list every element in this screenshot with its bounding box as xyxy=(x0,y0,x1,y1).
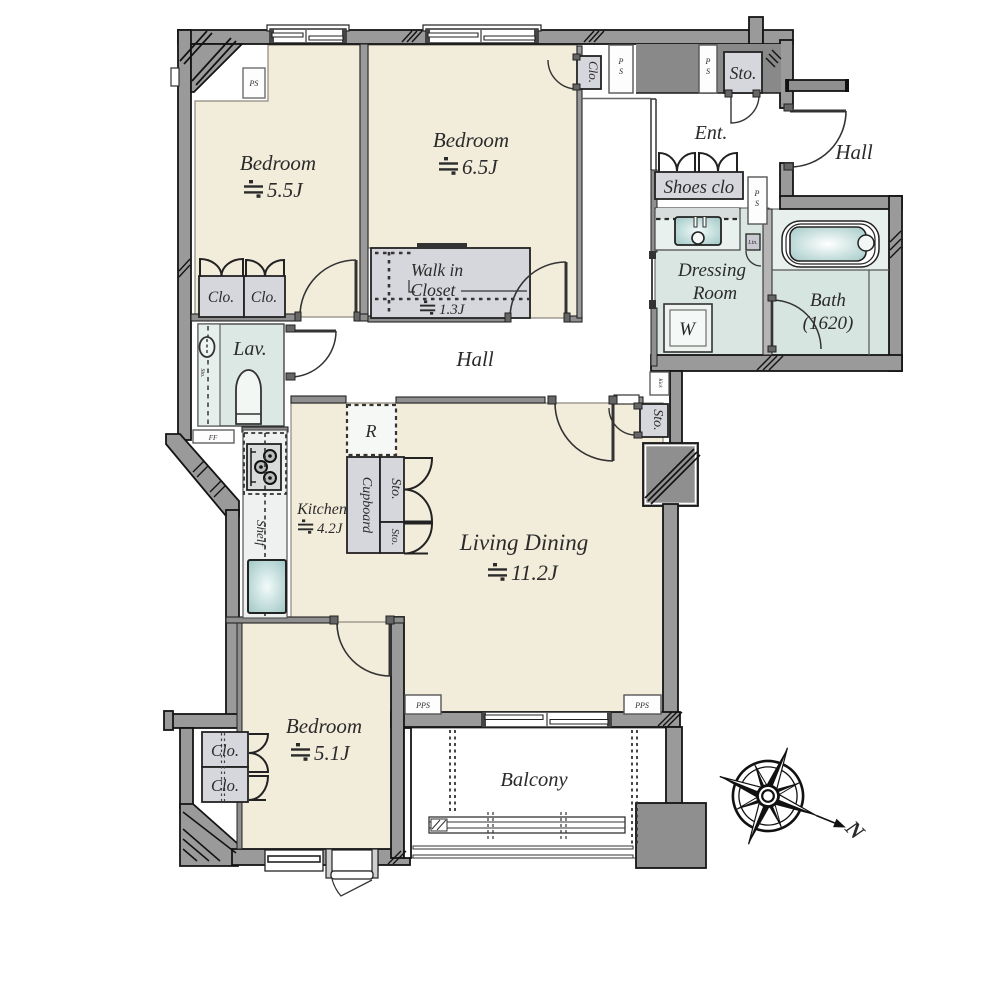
svg-text:Living Dining: Living Dining xyxy=(459,530,588,555)
svg-text:(1620): (1620) xyxy=(803,313,854,334)
svg-text:Bath: Bath xyxy=(810,290,846,311)
svg-text:Hall: Hall xyxy=(834,140,873,164)
svg-text:P: P xyxy=(754,189,760,198)
svg-text:W: W xyxy=(679,319,697,340)
svg-text:Sto.: Sto. xyxy=(650,409,665,430)
svg-text:Bedroom: Bedroom xyxy=(286,714,362,738)
svg-text:Sto.: Sto. xyxy=(199,368,205,377)
svg-text:Bedroom: Bedroom xyxy=(433,128,509,152)
svg-text:Walk in: Walk in xyxy=(411,260,464,280)
svg-text:PS: PS xyxy=(249,79,259,88)
svg-text:4.2J: 4.2J xyxy=(317,521,344,537)
svg-text:Bedroom: Bedroom xyxy=(240,151,316,175)
svg-text:Sto.: Sto. xyxy=(389,529,401,546)
svg-text:Shoes clo: Shoes clo xyxy=(664,178,734,198)
svg-text:Clo.: Clo. xyxy=(251,289,277,306)
svg-text:Closet: Closet xyxy=(411,280,457,300)
svg-text:Shelf: Shelf xyxy=(254,520,269,548)
svg-text:P: P xyxy=(705,57,711,66)
svg-text:R: R xyxy=(365,421,377,441)
svg-text:S: S xyxy=(619,67,623,76)
svg-text:Kitchen: Kitchen xyxy=(296,501,347,518)
svg-text:S: S xyxy=(755,199,759,208)
svg-text:6.5J: 6.5J xyxy=(462,155,499,179)
svg-text:Clo.: Clo. xyxy=(211,741,239,760)
svg-text:P: P xyxy=(618,57,624,66)
svg-text:Sto.: Sto. xyxy=(388,478,403,499)
svg-text:Balcony: Balcony xyxy=(500,769,568,791)
svg-text:Sto.: Sto. xyxy=(730,63,757,83)
svg-text:PPS: PPS xyxy=(415,701,430,710)
svg-text:11.2J: 11.2J xyxy=(511,560,559,585)
svg-text:5.5J: 5.5J xyxy=(267,178,304,202)
svg-text:Lin.: Lin. xyxy=(747,240,758,246)
svg-text:PPS: PPS xyxy=(634,701,649,710)
svg-text:S: S xyxy=(706,67,710,76)
svg-text:Lav.: Lav. xyxy=(232,338,267,360)
svg-text:Kick: Kick xyxy=(657,377,662,388)
svg-text:Cupboard: Cupboard xyxy=(359,477,374,534)
svg-text:5.1J: 5.1J xyxy=(314,741,351,765)
svg-text:Ent.: Ent. xyxy=(694,122,728,144)
svg-text:Hall: Hall xyxy=(455,347,494,371)
svg-text:Clo.: Clo. xyxy=(208,289,234,306)
svg-text:FF: FF xyxy=(208,434,218,442)
svg-text:Clo.: Clo. xyxy=(211,776,239,795)
svg-text:Clo.: Clo. xyxy=(586,61,601,83)
svg-text:Dressing: Dressing xyxy=(677,260,746,281)
svg-text:Room: Room xyxy=(692,283,737,304)
svg-text:1.3J: 1.3J xyxy=(439,302,466,318)
